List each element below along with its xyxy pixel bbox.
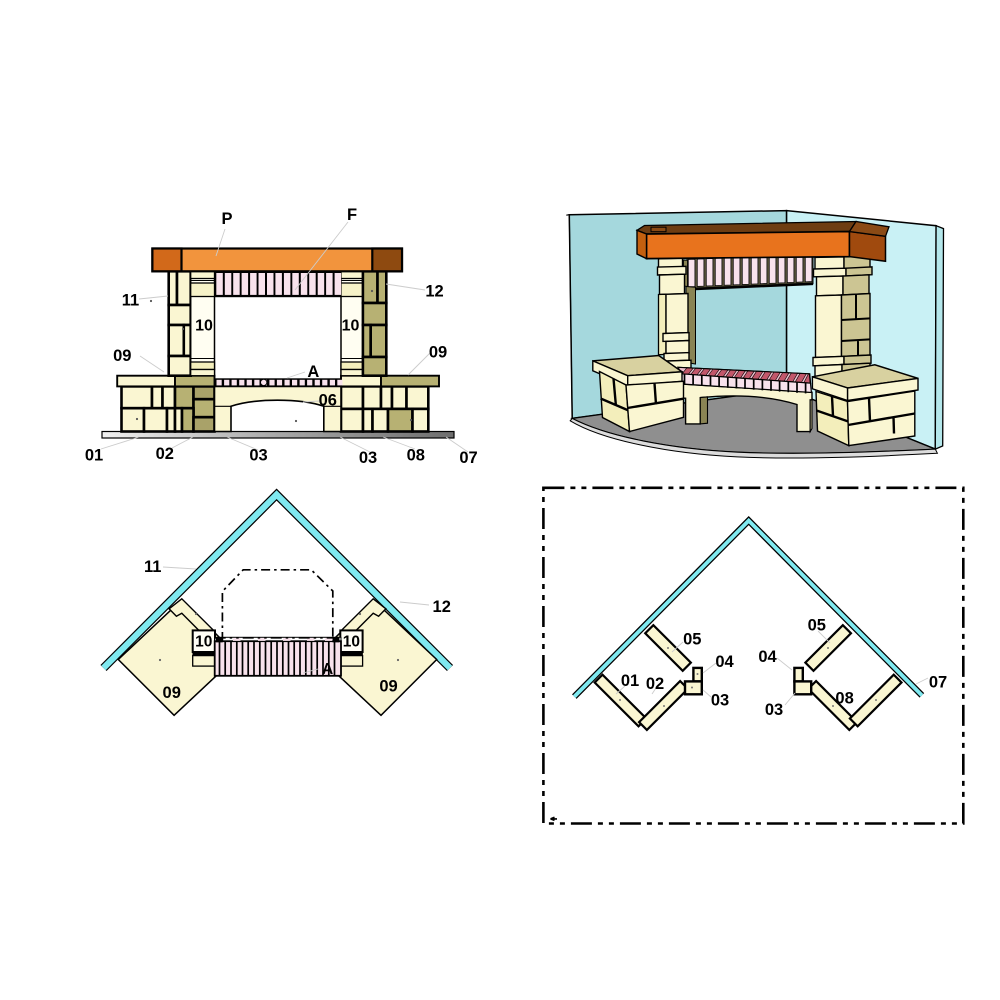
svg-text:01: 01 xyxy=(621,672,639,690)
svg-text:03: 03 xyxy=(765,701,783,719)
svg-text:A: A xyxy=(307,363,319,381)
svg-text:05: 05 xyxy=(683,631,701,649)
svg-text:10: 10 xyxy=(195,318,213,335)
svg-text:07: 07 xyxy=(459,449,477,467)
svg-text:09: 09 xyxy=(163,684,181,702)
svg-text:P: P xyxy=(221,210,232,228)
svg-text:A: A xyxy=(322,661,333,678)
svg-text:03: 03 xyxy=(711,692,729,710)
svg-text:12: 12 xyxy=(433,598,451,616)
svg-text:10: 10 xyxy=(195,634,212,651)
svg-text:02: 02 xyxy=(156,445,174,463)
svg-text:09: 09 xyxy=(429,344,447,362)
svg-text:06: 06 xyxy=(319,392,337,410)
svg-text:02: 02 xyxy=(646,675,664,693)
svg-text:10: 10 xyxy=(343,634,360,651)
svg-text:04: 04 xyxy=(715,653,734,671)
svg-text:03: 03 xyxy=(359,449,377,467)
svg-text:05: 05 xyxy=(808,617,826,635)
svg-text:03: 03 xyxy=(249,447,267,465)
svg-text:11: 11 xyxy=(144,558,161,576)
svg-text:09: 09 xyxy=(379,678,397,696)
svg-text:F: F xyxy=(347,206,357,224)
svg-text:07: 07 xyxy=(929,674,947,692)
svg-text:08: 08 xyxy=(835,689,853,707)
svg-text:01: 01 xyxy=(85,447,103,465)
svg-text:04: 04 xyxy=(758,648,777,666)
svg-text:08: 08 xyxy=(407,447,425,465)
svg-text:11: 11 xyxy=(122,292,139,310)
svg-text:10: 10 xyxy=(342,318,360,335)
svg-text:09: 09 xyxy=(113,347,131,365)
svg-text:12: 12 xyxy=(425,283,443,301)
